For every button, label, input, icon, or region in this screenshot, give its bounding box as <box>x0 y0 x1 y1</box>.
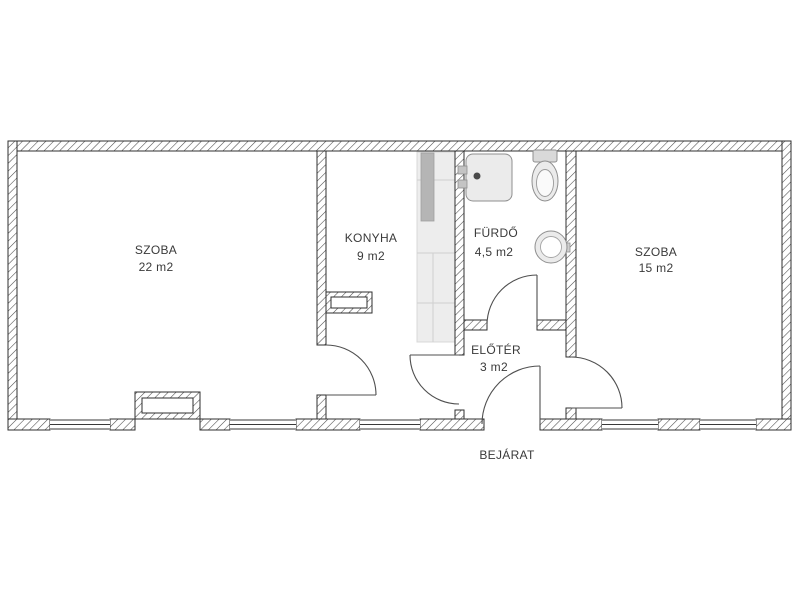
window <box>50 419 110 430</box>
window <box>230 419 296 430</box>
floor-plan: SZOBA 22 m2 KONYHA 9 m2 FÜRDŐ 4,5 m2 SZO… <box>0 0 800 600</box>
windows <box>50 419 756 430</box>
door-eloter-szoba <box>571 357 622 408</box>
room-area-szoba-right: 15 m2 <box>639 261 674 275</box>
drain-dot <box>474 173 481 180</box>
door-szoba-konyha <box>326 345 376 395</box>
outer-walls <box>8 141 791 430</box>
room-label-konyha: KONYHA <box>345 231 397 245</box>
washbasin <box>535 231 570 263</box>
room-area-szoba-left: 22 m2 <box>139 260 174 274</box>
room-area-konyha: 9 m2 <box>357 249 385 263</box>
kitchen-counter <box>417 152 455 342</box>
window <box>360 419 420 430</box>
room-label-szoba-left: SZOBA <box>135 243 177 257</box>
door-konyha-eloter <box>410 355 459 404</box>
window <box>602 419 658 430</box>
radiator-konyha <box>326 292 372 313</box>
floor-plan-page: SZOBA 22 m2 KONYHA 9 m2 FÜRDŐ 4,5 m2 SZO… <box>0 0 800 600</box>
room-label-furdo: FÜRDŐ <box>474 225 518 240</box>
room-area-furdo: 4,5 m2 <box>475 245 514 259</box>
toilet <box>532 150 558 201</box>
room-area-eloter: 3 m2 <box>480 360 508 374</box>
kitchen-appliance <box>421 153 434 221</box>
door-entrance <box>482 366 540 424</box>
room-label-eloter: ELŐTÉR <box>471 342 521 357</box>
room-label-szoba-right: SZOBA <box>635 245 677 259</box>
entrance-label: BEJÁRAT <box>479 447 535 462</box>
radiator-szoba <box>135 392 200 419</box>
bathtub <box>458 154 512 201</box>
door-furdo <box>487 275 537 325</box>
window <box>700 419 756 430</box>
